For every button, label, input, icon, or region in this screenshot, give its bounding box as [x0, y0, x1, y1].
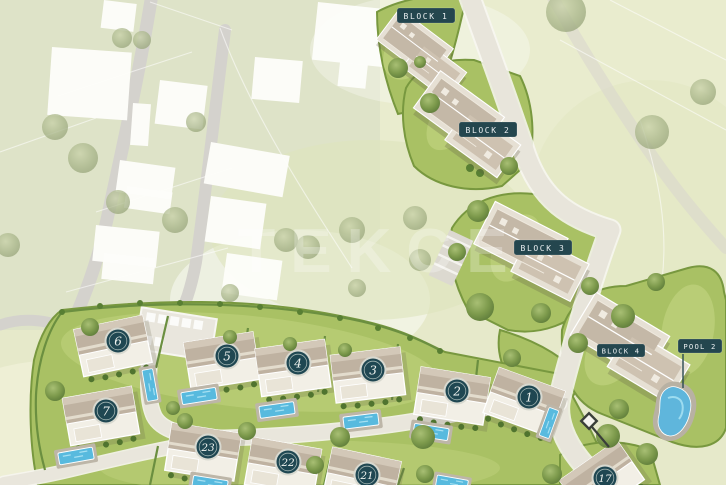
tree-icon	[500, 157, 518, 175]
tree-icon	[466, 293, 494, 321]
villa-2-marker: 2	[444, 378, 471, 405]
existing-building	[251, 57, 302, 103]
tree-icon	[133, 31, 151, 49]
tree-icon	[531, 303, 551, 323]
villa-3-number: 3	[369, 364, 377, 378]
tree-icon	[414, 56, 426, 68]
existing-building	[337, 62, 367, 89]
tree-icon	[186, 112, 206, 132]
block-1-label-text: BLOCK 1	[404, 12, 449, 21]
villa-6-number: 6	[114, 335, 122, 349]
tree-icon	[568, 333, 588, 353]
tree-icon	[636, 443, 658, 465]
villa-23-number: 23	[200, 442, 215, 454]
existing-building	[101, 0, 137, 32]
block-2-label-text: BLOCK 2	[466, 126, 511, 135]
villa-5-number: 5	[223, 350, 231, 364]
villa-4-marker: 4	[285, 350, 312, 377]
villa-7-marker: 7	[93, 398, 120, 425]
villa-22-marker: 22	[275, 449, 302, 476]
tree-icon	[166, 401, 180, 415]
block-2-label: BLOCK 2	[459, 122, 517, 137]
villa-22-number: 22	[280, 457, 295, 469]
tree-icon	[106, 190, 130, 214]
tree-icon	[542, 464, 562, 484]
block-4-label: BLOCK 4	[597, 344, 645, 357]
tree-icon	[81, 318, 99, 336]
existing-building	[130, 103, 151, 146]
block-1-label: BLOCK 1	[397, 8, 455, 23]
tree-icon	[581, 277, 599, 295]
existing-building	[101, 253, 155, 284]
tree-icon	[42, 114, 68, 140]
tree-icon	[177, 413, 193, 429]
block-3-label-text: BLOCK 3	[521, 244, 566, 253]
villa-1-marker: 1	[516, 384, 543, 411]
tree-icon	[420, 93, 440, 113]
tree-icon	[45, 381, 65, 401]
villa-1-number: 1	[525, 391, 533, 405]
villa-21-number: 21	[359, 470, 373, 482]
tree-icon	[238, 422, 256, 440]
villa-4: 4	[255, 339, 337, 405]
tree-icon	[306, 456, 324, 474]
villa-23-marker: 23	[195, 434, 222, 461]
pool-2-label-text: POOL 2	[683, 342, 716, 351]
tree-icon	[416, 465, 434, 483]
villa-3-marker: 3	[360, 357, 387, 384]
tree-icon	[690, 79, 716, 105]
site-plan-page: 6 5 4 3	[0, 0, 726, 485]
tree-icon	[338, 343, 352, 357]
villa-5-marker: 5	[214, 343, 241, 370]
tree-icon	[68, 143, 98, 173]
block-4-label-text: BLOCK 4	[602, 346, 641, 355]
tree-icon	[388, 58, 408, 78]
tree-icon	[221, 284, 239, 302]
tree-icon	[330, 427, 350, 447]
villa-6-marker: 6	[105, 328, 132, 355]
villa-7-number: 7	[102, 405, 110, 419]
tree-icon	[283, 337, 297, 351]
tree-icon	[611, 304, 635, 328]
tree-icon	[609, 399, 629, 419]
tree-icon	[223, 330, 237, 344]
tree-icon	[112, 28, 132, 48]
tree-icon	[411, 425, 435, 449]
watermark: TEKCE	[237, 217, 522, 286]
villa-2-number: 2	[452, 385, 461, 399]
tree-icon	[647, 273, 665, 291]
tree-icon	[503, 349, 521, 367]
villa-4-number: 4	[293, 357, 302, 371]
tree-icon	[162, 207, 188, 233]
villa-17-number: 17	[598, 473, 612, 485]
site-plan-canvas: 6 5 4 3	[0, 0, 726, 485]
tree-icon	[635, 115, 669, 149]
block-3-label: BLOCK 3	[514, 240, 572, 255]
existing-building	[47, 47, 132, 120]
